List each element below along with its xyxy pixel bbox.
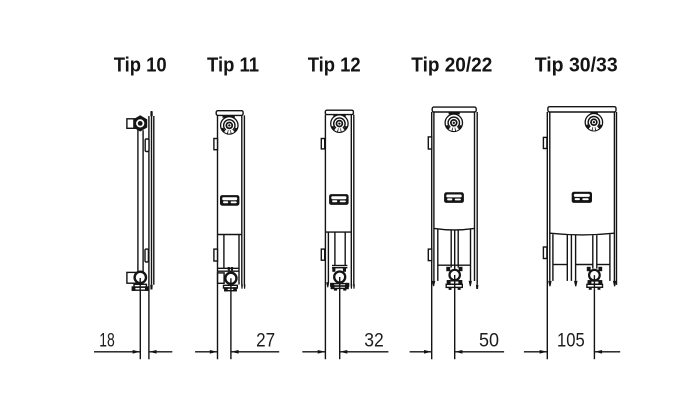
svg-text:32: 32 [364,330,384,351]
svg-text:Tip 11: Tip 11 [207,54,259,76]
svg-text:105: 105 [557,330,585,351]
svg-text:Tip 20/22: Tip 20/22 [411,54,492,76]
svg-text:27: 27 [256,330,275,351]
svg-text:Tip 12: Tip 12 [308,54,361,76]
svg-text:18: 18 [99,330,115,351]
svg-text:Tip 10: Tip 10 [114,54,167,76]
svg-text:Tip 30/33: Tip 30/33 [535,54,618,76]
svg-text:50: 50 [479,330,499,351]
